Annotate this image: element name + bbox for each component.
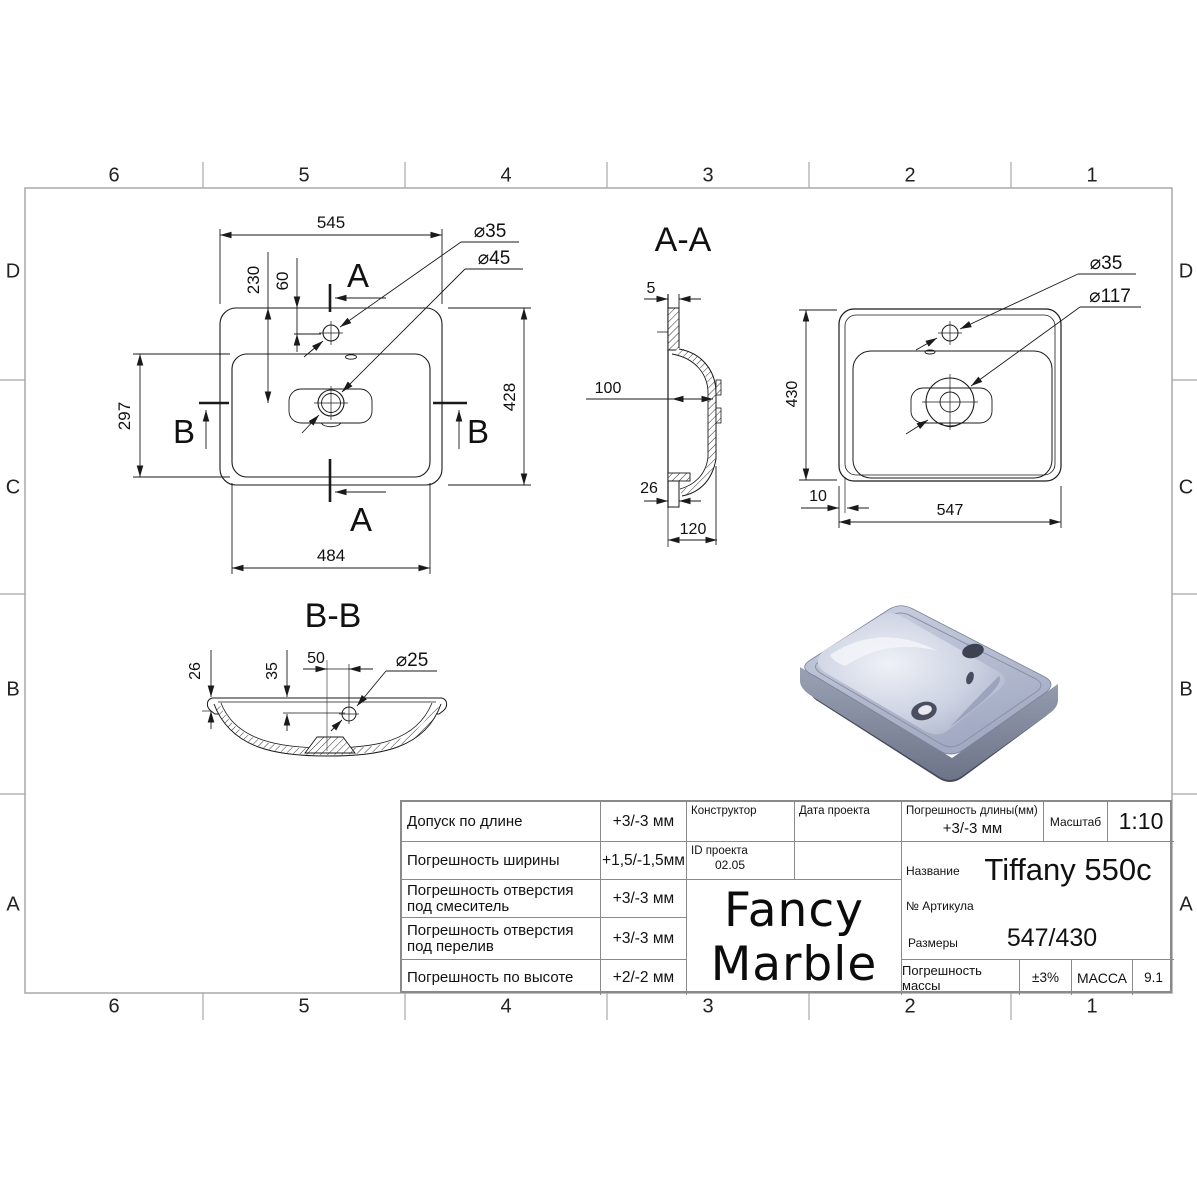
constructor-cell: Конструктор: [687, 802, 795, 842]
tolerance-row-value: +3/-3 мм: [601, 802, 687, 842]
title-block: Допуск по длине Погрешность ширины Погре…: [400, 800, 1172, 993]
dia-35-aa-label: ⌀35: [1090, 253, 1123, 274]
project-date-cell: Дата проекта: [795, 802, 902, 842]
col-label-top-4: 4: [500, 165, 511, 188]
project-id-label: ID проекта: [691, 845, 748, 857]
dia-25-label: ⌀25: [396, 650, 429, 671]
mass-tolerance-label-cell: Погрешность массы: [902, 960, 1020, 995]
dia-117-label: ⌀117: [1089, 286, 1131, 307]
drawing-sheet: 545 230 60 297 428 484 ⌀35 ⌀45 A A B B: [0, 0, 1197, 1200]
project-date-label: Дата проекта: [799, 805, 870, 817]
plan-drain-recess: [289, 389, 372, 423]
project-id-cell: ID проекта 02.05: [687, 842, 795, 880]
col-label-bottom-6: 6: [108, 996, 119, 1019]
bb-title: B-B: [305, 597, 362, 635]
dim-10: 10: [809, 488, 827, 505]
dim-26-aa: 26: [640, 480, 658, 497]
col-label-top-3: 3: [702, 165, 713, 188]
row-label-right-c: C: [1179, 477, 1193, 500]
project-id-value: 02.05: [715, 858, 745, 872]
length-tolerance-cell: Погрешность длины(мм) +3/-3 мм: [902, 802, 1044, 842]
mass-value: 9.1: [1144, 970, 1163, 985]
scale-value: 1:10: [1119, 808, 1164, 835]
col-label-bottom-1: 1: [1086, 996, 1097, 1019]
dim-35-bb: 35: [264, 662, 281, 680]
tolerance-row-label: Погрешность по высоте: [402, 960, 601, 995]
size-label: Размеры: [908, 936, 958, 950]
col-label-bottom-5: 5: [298, 996, 309, 1019]
scale-value-cell: 1:10: [1108, 802, 1174, 842]
tolerance-row-value: +3/-3 мм: [601, 918, 687, 960]
section-b-left: B: [173, 413, 195, 450]
col-label-top-6: 6: [108, 165, 119, 188]
plan-overflow-slot: [346, 355, 357, 359]
aa-title: A-A: [655, 221, 712, 259]
mass-label: МАССА: [1077, 970, 1127, 986]
dim-430: 430: [784, 381, 801, 408]
dim-484: 484: [317, 546, 345, 565]
section-aa-view: [586, 274, 1141, 547]
dim-428: 428: [500, 383, 519, 411]
section-aa-text: A-A 5 100 26 120 430 547 10 ⌀35 ⌀117: [595, 221, 1131, 538]
dim-297: 297: [115, 402, 134, 430]
dim-5: 5: [647, 280, 656, 297]
row-label-left-d: D: [6, 261, 20, 284]
product-info-cell: Название Tiffany 550c № Артикула Размеры…: [902, 842, 1174, 960]
section-bb-text: B-B 50 35 26 ⌀25: [187, 597, 428, 680]
empty-cell: [795, 842, 902, 880]
tolerance-row-label: Погрешность отверстия под перелив: [402, 918, 601, 960]
drawing-canvas: 545 230 60 297 428 484 ⌀35 ⌀45 A A B B: [0, 0, 1197, 1200]
plan-dimensions: [133, 229, 531, 574]
col-label-top-1: 1: [1086, 165, 1097, 188]
name-label: Название: [906, 864, 960, 878]
dim-230: 230: [244, 266, 263, 294]
constructor-label: Конструктор: [691, 805, 757, 817]
col-label-top-5: 5: [298, 165, 309, 188]
scale-label-cell: Масштаб: [1044, 802, 1108, 842]
row-label-left-c: C: [6, 477, 20, 500]
dim-50: 50: [307, 650, 325, 667]
article-label: № Артикула: [906, 899, 974, 913]
size-value: 547/430: [972, 924, 1132, 953]
section-a-top: A: [347, 257, 369, 294]
dia-35-label: ⌀35: [474, 221, 507, 242]
dim-120: 120: [680, 521, 707, 538]
tolerance-row-label: Допуск по длине: [402, 802, 601, 842]
mass-tolerance-value-cell: ±3%: [1020, 960, 1072, 995]
dim-547: 547: [937, 502, 964, 519]
sink-3d-view: [800, 606, 1058, 782]
brand-logo: Fancy Marble: [687, 880, 902, 995]
mass-tolerance-value: ±3%: [1032, 970, 1059, 985]
product-name: Tiffany 550c: [962, 852, 1174, 888]
tolerance-row-label: Погрешность ширины: [402, 842, 601, 880]
scale-label: Масштаб: [1050, 815, 1101, 829]
length-tolerance-value: +3/-3 мм: [902, 820, 1043, 837]
row-label-left-a: A: [6, 894, 19, 917]
row-label-left-b: B: [6, 679, 19, 702]
dim-60: 60: [273, 272, 292, 291]
tolerance-row-label: Погрешность отверстия под смеситель: [402, 880, 601, 918]
plan-view: [220, 308, 442, 485]
dim-26-bb: 26: [187, 662, 204, 680]
dim-545: 545: [317, 213, 345, 232]
brand-logo-line2: Marble: [711, 938, 877, 992]
row-label-right-b: B: [1179, 679, 1192, 702]
dim-100: 100: [595, 380, 622, 397]
section-a-bottom: A: [350, 501, 372, 538]
mass-value-cell: 9.1: [1133, 960, 1174, 995]
tolerance-row-value: +2/-2 мм: [601, 960, 687, 995]
brand-logo-line1: Fancy: [724, 884, 864, 938]
tolerance-row-value: +1,5/-1,5мм: [601, 842, 687, 880]
col-label-bottom-2: 2: [904, 996, 915, 1019]
section-b-right: B: [467, 413, 489, 450]
row-label-right-d: D: [1179, 261, 1193, 284]
length-tolerance-label: Погрешность длины(мм): [906, 805, 1038, 817]
row-label-right-a: A: [1179, 894, 1192, 917]
mass-label-cell: МАССА: [1072, 960, 1133, 995]
tolerance-row-value: +3/-3 мм: [601, 880, 687, 918]
dia-45-label: ⌀45: [478, 248, 511, 269]
col-label-bottom-3: 3: [702, 996, 713, 1019]
col-label-top-2: 2: [904, 165, 915, 188]
mass-tolerance-label: Погрешность массы: [902, 963, 1019, 993]
col-label-bottom-4: 4: [500, 996, 511, 1019]
